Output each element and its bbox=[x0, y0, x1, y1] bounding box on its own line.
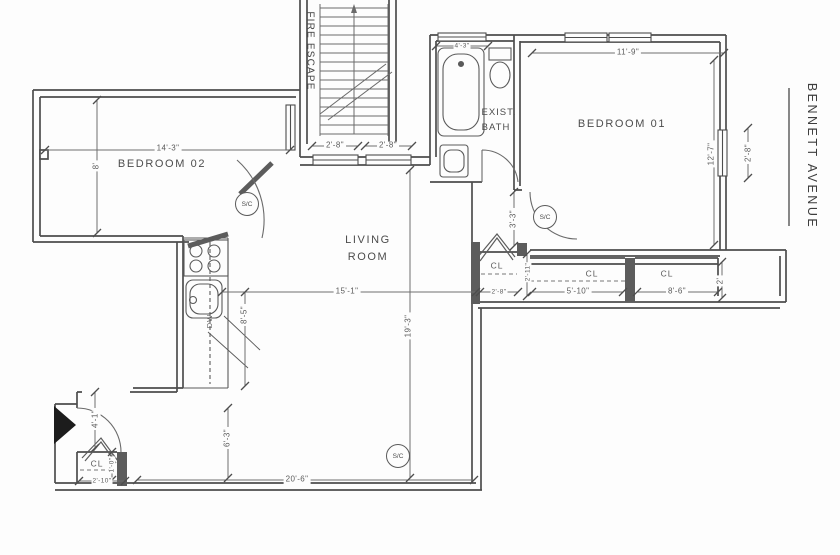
dim-closet1-width: 2'-8" bbox=[491, 288, 508, 295]
room-label-bath-line2: BATH bbox=[480, 123, 513, 133]
dim-livingroom-height: 19'-3" bbox=[405, 313, 414, 340]
closet-label-1: CL bbox=[489, 261, 506, 270]
dim-entry-side: 6'-3" bbox=[224, 427, 233, 449]
fire-escape-label: FIRE ESCAPE bbox=[305, 11, 316, 90]
dim-closet-depth: 2' bbox=[717, 276, 726, 287]
smoke-co-detector-icon: S/C bbox=[235, 192, 259, 216]
dim-entry-closet-depth: 1'-0" bbox=[108, 457, 115, 474]
room-label-living-line1: LIVING bbox=[345, 234, 391, 246]
dim-closet1-depth: 2'-11" bbox=[524, 262, 531, 282]
floor-plan: BEDROOM 02 BEDROOM 01 LIVING ROOM EXIST.… bbox=[0, 0, 840, 555]
dim-livingroom-window-2: 2'-8" bbox=[377, 142, 399, 151]
dim-bedroom01-window: 2'-8" bbox=[745, 142, 754, 164]
dim-bath-width: 4'-3" bbox=[454, 42, 471, 49]
dim-closet3-width: 8'-6" bbox=[666, 288, 688, 297]
dim-vestibule: 4'-1" bbox=[92, 408, 101, 430]
smoke-co-detector-icon: S/C bbox=[533, 205, 557, 229]
dim-bedroom02-width: 14'-3" bbox=[155, 145, 182, 154]
dim-bedroom01-height: 12'-7" bbox=[708, 141, 717, 168]
dim-kitchen-run: 8'-5" bbox=[241, 304, 250, 326]
room-label-bedroom01: BEDROOM 01 bbox=[578, 118, 666, 130]
closet-label-entry: CL bbox=[89, 459, 106, 468]
dim-bedroom01-width: 11'-9" bbox=[615, 49, 641, 58]
floorplan-linework bbox=[0, 0, 840, 555]
dishwasher-label: DW bbox=[206, 312, 214, 331]
dim-bedroom01-door: 3'-3" bbox=[510, 208, 519, 230]
closet-label-3: CL bbox=[659, 269, 676, 278]
closet-label-2: CL bbox=[584, 269, 601, 278]
dim-livingroom-width: 15'-1" bbox=[334, 288, 361, 297]
smoke-co-detector-icon: S/C bbox=[386, 444, 410, 468]
dim-closet2-width: 5'-10" bbox=[565, 288, 592, 297]
room-label-bedroom02: BEDROOM 02 bbox=[118, 158, 206, 170]
room-label-living-line2: ROOM bbox=[348, 251, 389, 263]
dim-bedroom02-height: 8' bbox=[93, 161, 102, 172]
room-label-bath-line1: EXIST. bbox=[479, 108, 518, 118]
street-label: BENNETT AVENUE bbox=[805, 83, 819, 229]
dim-livingroom-bottom: 20'-6" bbox=[284, 476, 311, 485]
dim-entry-closet-width: 2'-10" bbox=[92, 477, 113, 484]
dim-livingroom-window-1: 2'-8" bbox=[324, 142, 346, 151]
